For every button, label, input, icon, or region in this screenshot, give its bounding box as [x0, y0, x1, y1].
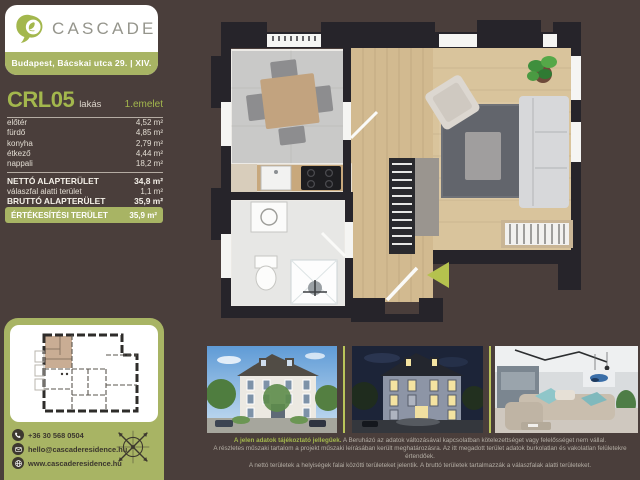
photo-divider [343, 346, 345, 433]
net-area-value: 34,8 m² [134, 177, 163, 187]
net-area-label: NETTÓ ALAPTERÜLET [7, 177, 99, 187]
room-area: 4,52 m² [136, 118, 163, 128]
disclaimer-line-2: A részletes műszaki tartalom a projekt m… [205, 445, 635, 461]
gross-area-row: BRUTTÓ ALAPTERÜLET 35,9 m² [7, 197, 163, 207]
room-row: konyha 2,79 m² [7, 139, 163, 149]
logo-row: CASCADE [5, 5, 158, 52]
cooktop [301, 166, 341, 190]
gross-area-label: BRUTTÓ ALAPTERÜLET [7, 197, 105, 207]
room-list: előtér 4,52 m² fürdő 4,85 m² konyha 2,79… [7, 118, 163, 169]
washing-machine [251, 202, 287, 232]
hall-cabinet [415, 158, 439, 236]
highlighted-unit [45, 336, 72, 368]
unit-type-label: lakás [79, 99, 101, 110]
room-row: fürdő 4,85 m² [7, 128, 163, 138]
photo-exterior-day [207, 346, 337, 433]
room-row: előtér 4,52 m² [7, 118, 163, 128]
dining-table [260, 73, 320, 129]
disclaimer: A jelen adatok tájékoztató jellegűek. A … [205, 437, 635, 470]
logo-card: CASCADE Budapest, Bácskai utca 29. | XIV… [5, 5, 158, 75]
compass-rose-icon [110, 424, 156, 470]
disclaimer-line-1: A jelen adatok tájékoztató jellegűek. A … [205, 437, 635, 445]
net-area-row: NETTÓ ALAPTERÜLET 34,8 m² [7, 177, 163, 187]
email-icon [12, 443, 24, 455]
brand-name: CASCADE [52, 19, 157, 39]
unit-header: CRL05 lakás 1.emelet [7, 87, 163, 118]
room-row: nappali 18,2 m² [7, 159, 163, 169]
disclaimer-line-3: A nettó területek a helyiségek falai köz… [205, 462, 635, 470]
floorplan [203, 0, 593, 340]
room-name: konyha [7, 139, 33, 149]
disclaimer-line1-rest: A Beruházó az adatok változásával kapcso… [343, 437, 606, 444]
website-text: www.cascaderesidence.hu [28, 459, 122, 468]
room-area: 18,2 m² [136, 159, 163, 169]
photo-exterior-night [352, 346, 483, 433]
room-row: étkező 4,44 m² [7, 149, 163, 159]
phone-text: +36 30 568 0504 [28, 431, 84, 440]
disclaimer-lead: A jelen adatok tájékoztató jellegűek. [234, 437, 342, 444]
leaf-logo-icon [14, 12, 46, 46]
kitchen-sink [261, 166, 291, 190]
gross-area-value: 35,9 m² [134, 197, 163, 207]
building-miniplan [10, 325, 158, 422]
living-room-radiator [501, 220, 573, 248]
room-name: fürdő [7, 128, 25, 138]
room-name: étkező [7, 149, 31, 159]
globe-icon [12, 457, 24, 469]
photo-divider [489, 346, 491, 433]
room-area: 4,85 m² [136, 128, 163, 138]
sofa [519, 96, 569, 208]
unit-floor-label: 1.emelet [125, 99, 163, 110]
building-miniplan-card [10, 325, 158, 422]
room-area: 2,79 m² [136, 139, 163, 149]
room-name: előtér [7, 118, 27, 128]
photo-interior-living [495, 346, 638, 433]
coffee-table [465, 132, 501, 180]
sales-area-value: 35,9 m² [129, 211, 157, 220]
kitchen-counter [231, 164, 351, 192]
sales-area-label: ÉRTÉKESÍTÉSI TERÜLET [11, 211, 108, 220]
unit-code: CRL05 [7, 87, 74, 113]
room-area: 4,44 m² [136, 149, 163, 159]
room-name: nappali [7, 159, 33, 169]
area-totals: NETTÓ ALAPTERÜLET 34,8 m² válaszfal alat… [7, 177, 163, 206]
phone-icon [12, 429, 24, 441]
brochure-page: CASCADE Budapest, Bácskai utca 29. | XIV… [0, 0, 640, 480]
divider [7, 172, 163, 173]
contact-panel: +36 30 568 0504 hello@cascaderesidence.h… [4, 318, 164, 480]
address-band: Budapest, Bácskai utca 29. | XIV. [5, 52, 158, 75]
sales-area-bar: ÉRTÉKESÍTÉSI TERÜLET 35,9 m² [5, 207, 163, 223]
